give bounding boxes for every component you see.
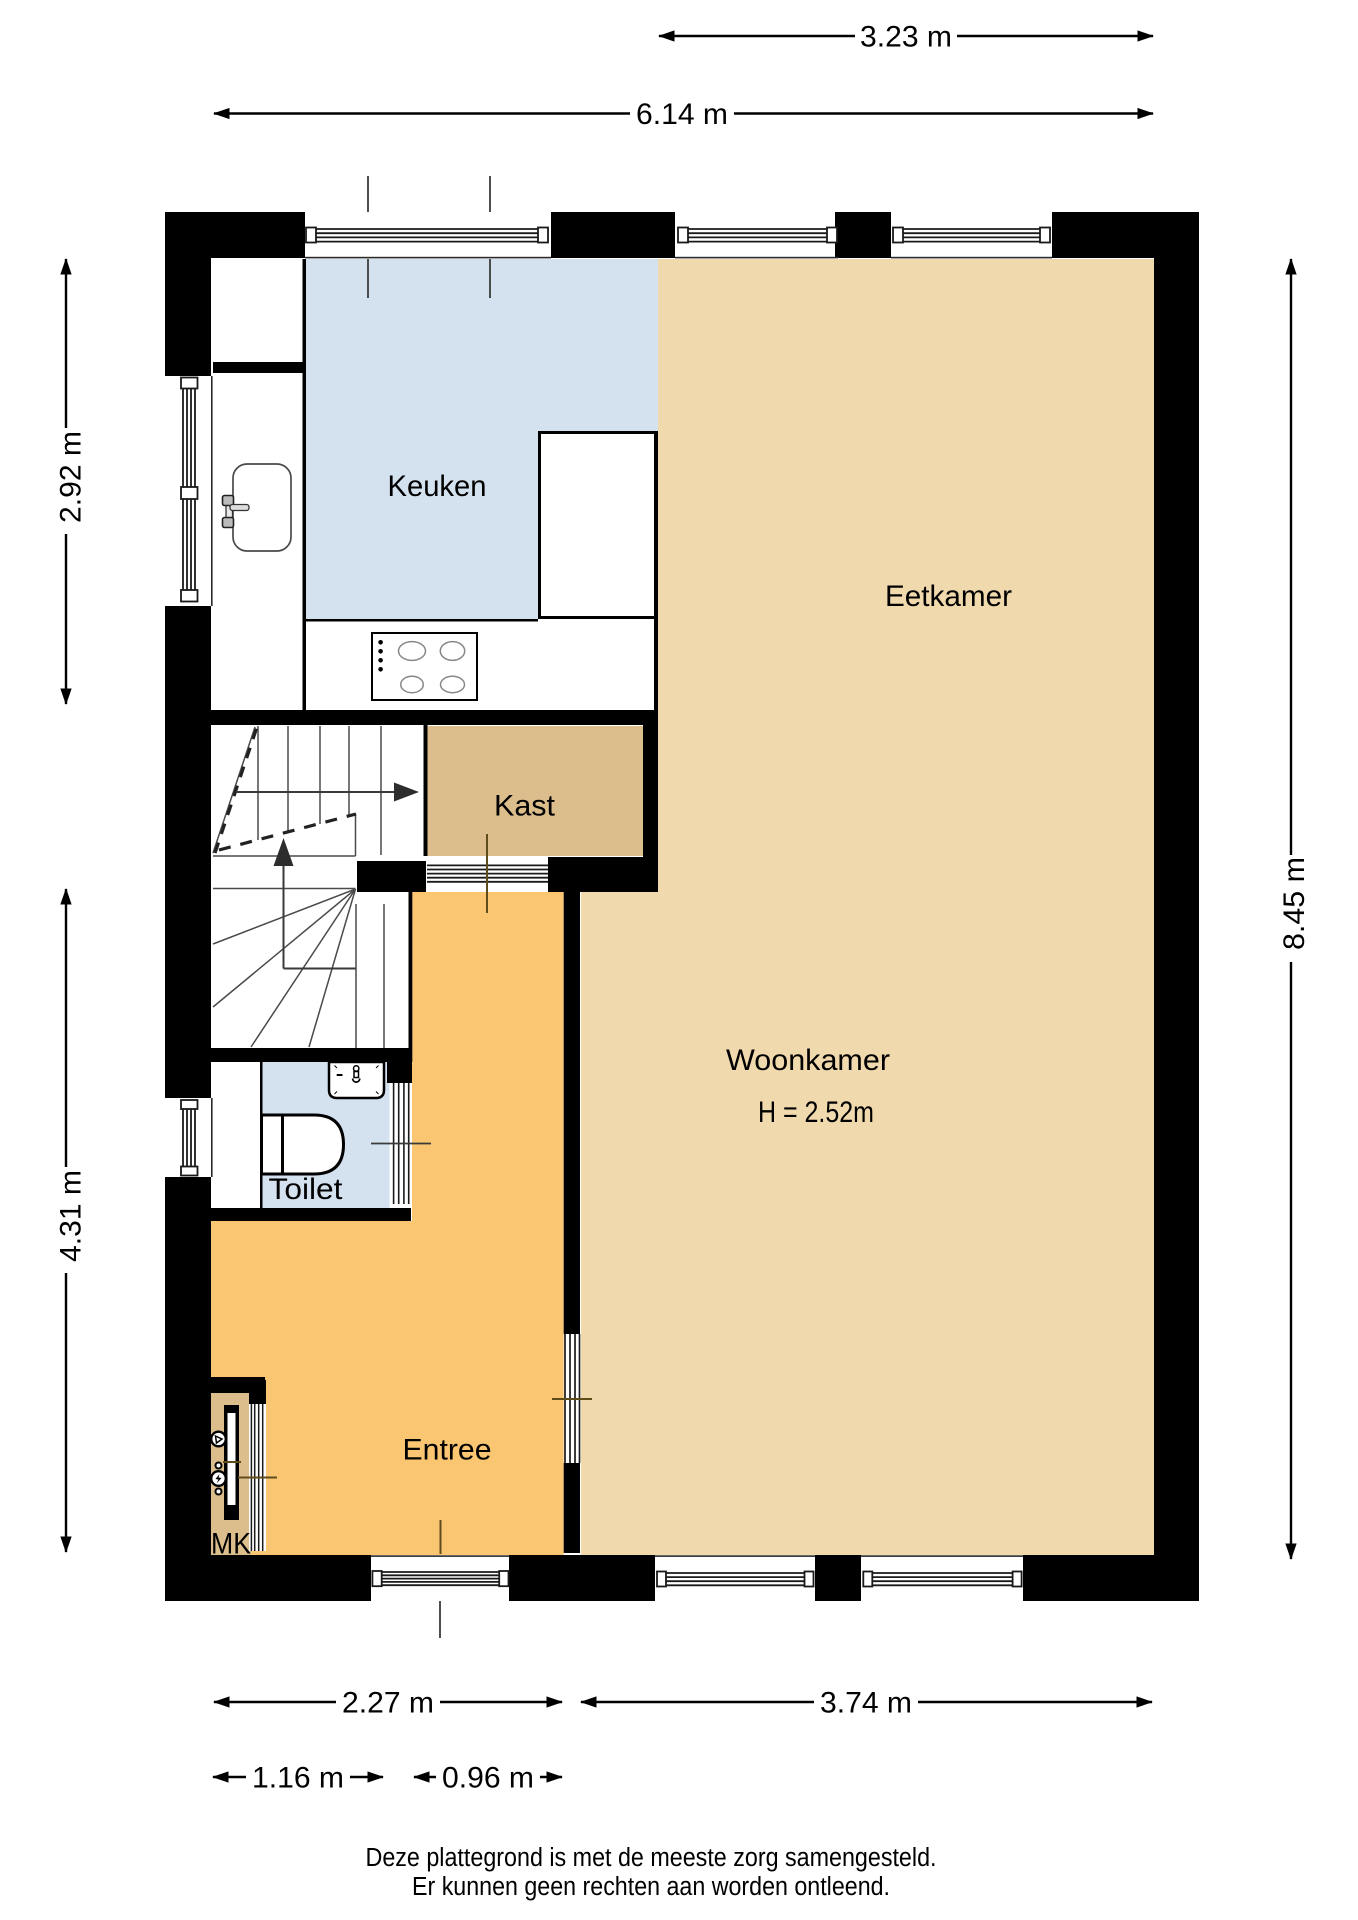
svg-text:2.92 m: 2.92 m xyxy=(55,431,88,523)
svg-text:4.31 m: 4.31 m xyxy=(55,1170,88,1262)
svg-text:Keuken: Keuken xyxy=(388,470,487,503)
svg-text:0.96 m: 0.96 m xyxy=(442,1762,534,1795)
svg-text:Eetkamer: Eetkamer xyxy=(885,580,1012,613)
svg-text:8.45 m: 8.45 m xyxy=(1278,857,1311,950)
svg-text:1.16 m: 1.16 m xyxy=(252,1762,344,1795)
svg-text:Er kunnen geen rechten aan wor: Er kunnen geen rechten aan worden ontlee… xyxy=(412,1873,890,1901)
svg-text:MK: MK xyxy=(211,1528,251,1561)
svg-text:Toilet: Toilet xyxy=(269,1173,344,1206)
svg-text:3.23 m: 3.23 m xyxy=(860,21,952,54)
svg-text:2.27 m: 2.27 m xyxy=(342,1687,434,1720)
svg-text:Entree: Entree xyxy=(403,1434,492,1467)
svg-text:Kast: Kast xyxy=(494,790,556,823)
svg-text:3.74 m: 3.74 m xyxy=(820,1687,912,1720)
svg-text:Deze plattegrond is met de mee: Deze plattegrond is met de meeste zorg s… xyxy=(366,1844,937,1872)
svg-text:H = 2.52m: H = 2.52m xyxy=(758,1096,874,1129)
svg-text:6.14 m: 6.14 m xyxy=(636,98,728,131)
svg-text:Woonkamer: Woonkamer xyxy=(726,1044,890,1077)
